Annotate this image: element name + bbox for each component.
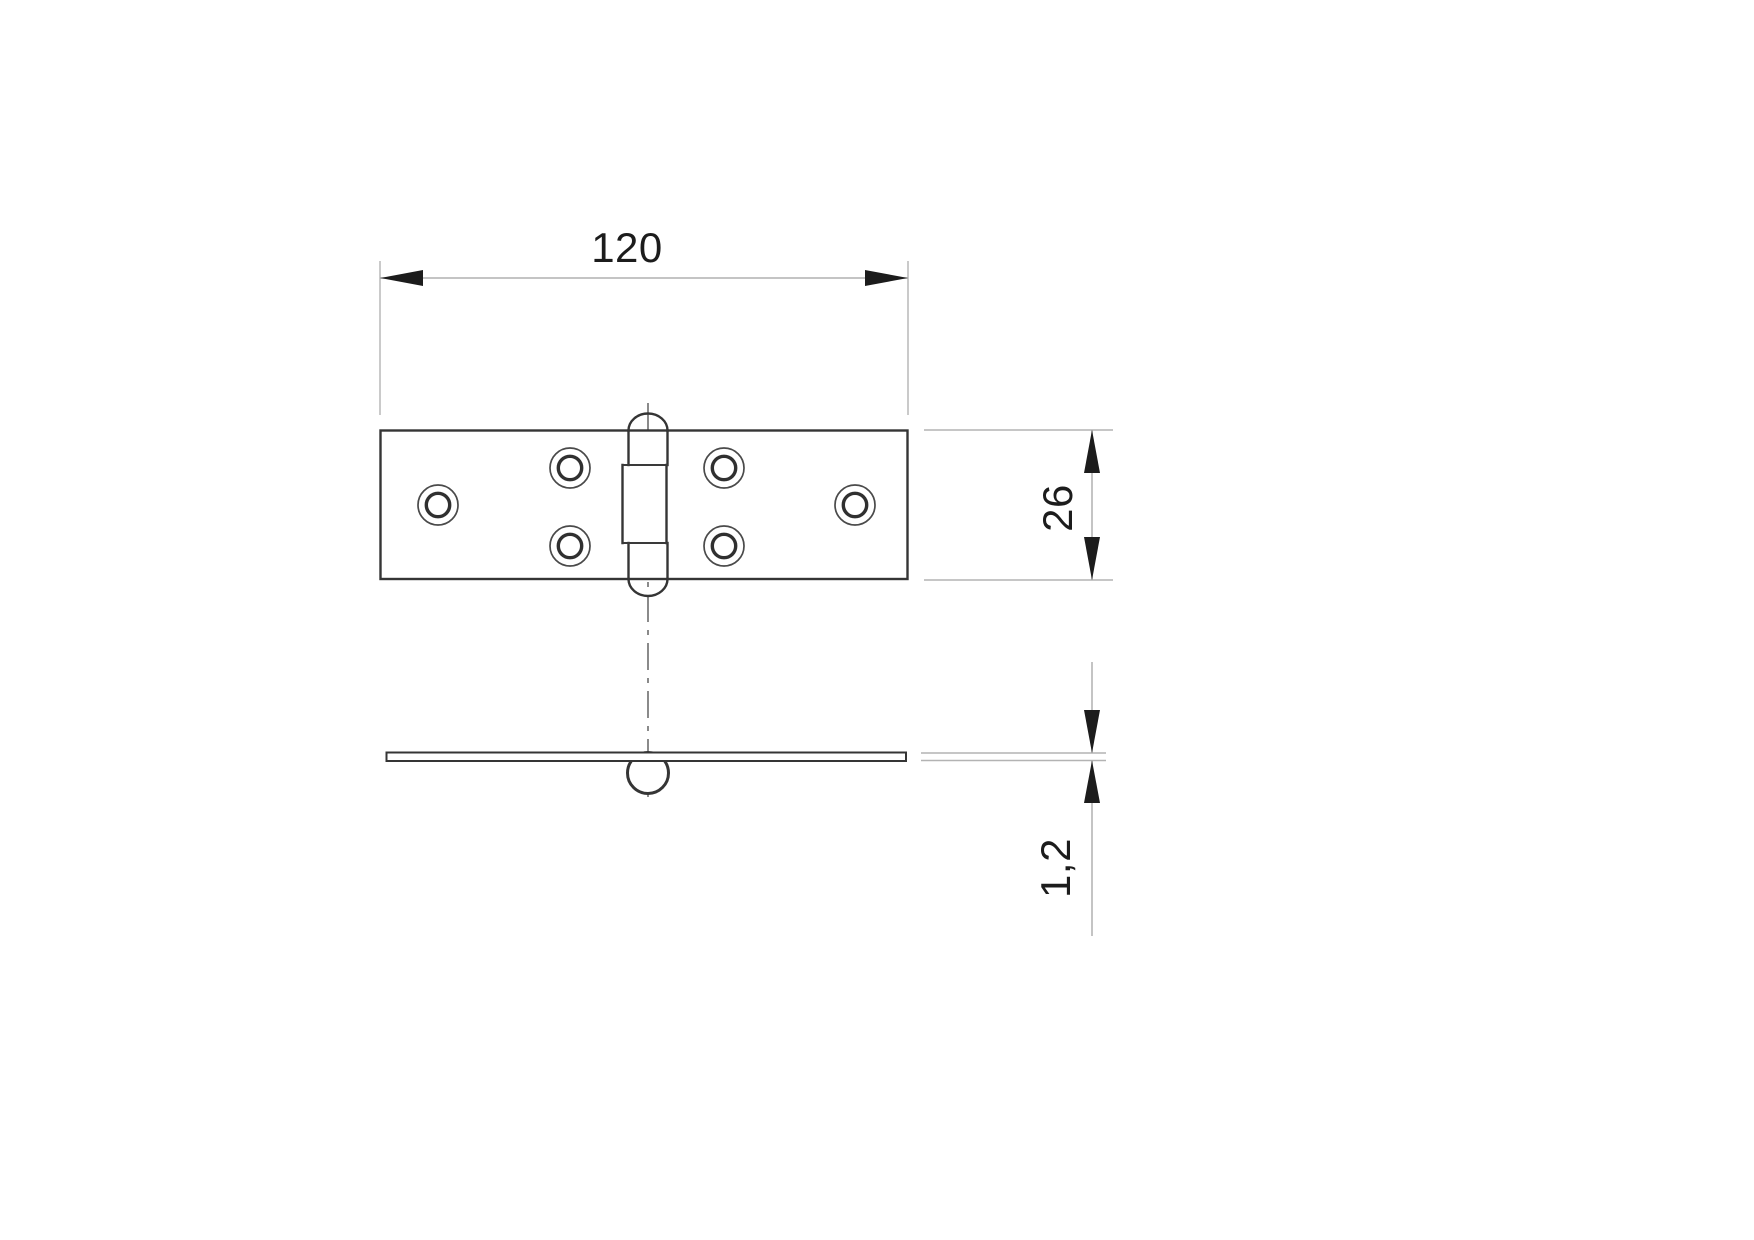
arrow-left-icon — [380, 270, 423, 286]
hinge-leaf-outline — [381, 431, 908, 580]
front-view — [381, 414, 908, 597]
dimension-thickness: 1,2 — [921, 662, 1106, 936]
width-dimension-label: 120 — [591, 224, 663, 271]
arrow-down-icon — [1084, 710, 1100, 753]
hinge-technical-drawing: 120 26 1,2 — [0, 0, 1754, 1240]
leaf-edge-profile — [387, 753, 907, 762]
arrow-up-icon — [1084, 761, 1100, 804]
drawing-canvas: 120 26 1,2 — [0, 0, 1754, 1240]
arrow-up-icon — [1084, 430, 1100, 473]
arrow-down-icon — [1084, 537, 1100, 580]
thickness-dimension-label: 1,2 — [1032, 838, 1079, 898]
arrow-right-icon — [865, 270, 908, 286]
dimension-width: 120 — [380, 224, 908, 415]
dimension-height: 26 — [924, 430, 1113, 580]
side-view — [387, 753, 907, 794]
height-dimension-label: 26 — [1034, 484, 1081, 532]
knuckle-bottom-cap — [629, 579, 668, 596]
